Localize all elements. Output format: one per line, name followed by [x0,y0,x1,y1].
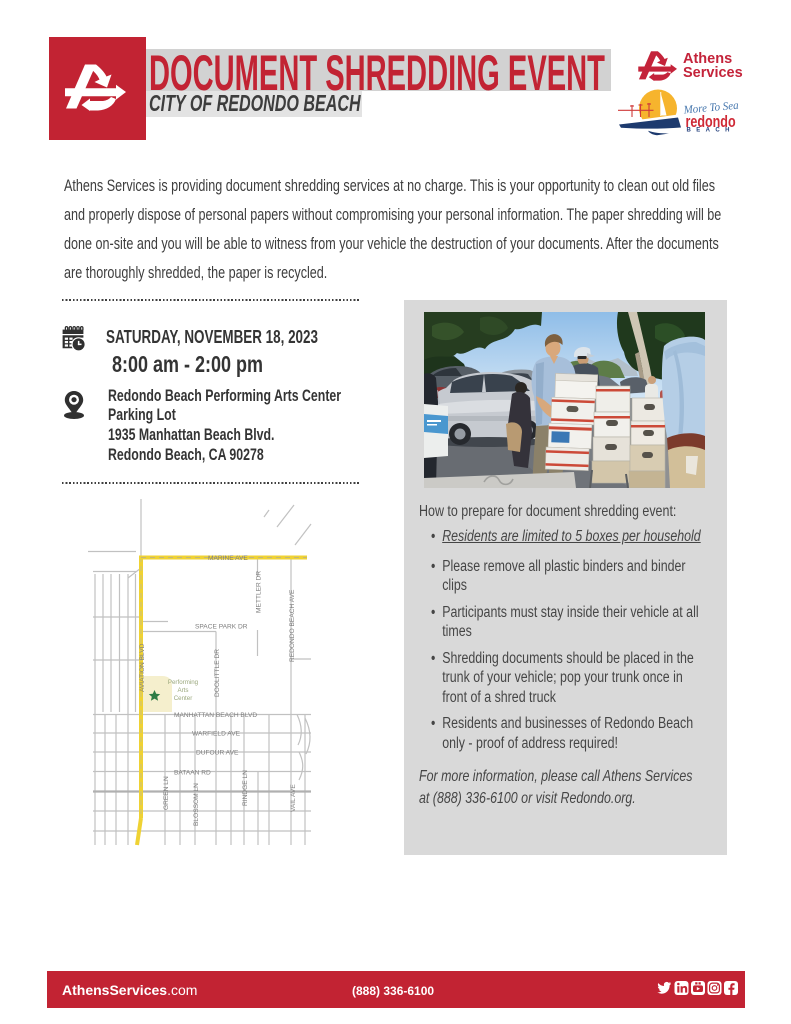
svg-text:BATAAN RD: BATAAN RD [174,770,211,777]
svg-text:REDONDO BEACH AVE: REDONDO BEACH AVE [289,589,296,662]
svg-text:Center: Center [174,695,193,702]
svg-text:DOOLITTLE DR: DOOLITTLE DR [214,649,221,697]
svg-text:MANHATTAN BEACH BLVD: MANHATTAN BEACH BLVD [174,712,257,719]
svg-text:BEACH: BEACH [687,128,735,134]
svg-text:Arts: Arts [177,687,188,694]
svg-text:GREEN LN: GREEN LN [163,776,170,810]
svg-text:BLOSSOM LN: BLOSSOM LN [193,783,200,826]
svg-text:AVIATION BLVD: AVIATION BLVD [139,643,146,692]
svg-text:SPACE PARK DR: SPACE PARK DR [195,624,248,631]
svg-text:MARINE AVE: MARINE AVE [208,555,248,562]
svg-text:WARFIELD AVE: WARFIELD AVE [192,731,241,738]
svg-text:VAIL AVE: VAIL AVE [290,784,297,812]
svg-text:DUFOUR AVE: DUFOUR AVE [196,750,239,757]
svg-text:Performing: Performing [168,679,199,686]
svg-text:METTLER DR: METTLER DR [256,571,263,613]
svg-text:RINDGE LN: RINDGE LN [242,770,249,806]
